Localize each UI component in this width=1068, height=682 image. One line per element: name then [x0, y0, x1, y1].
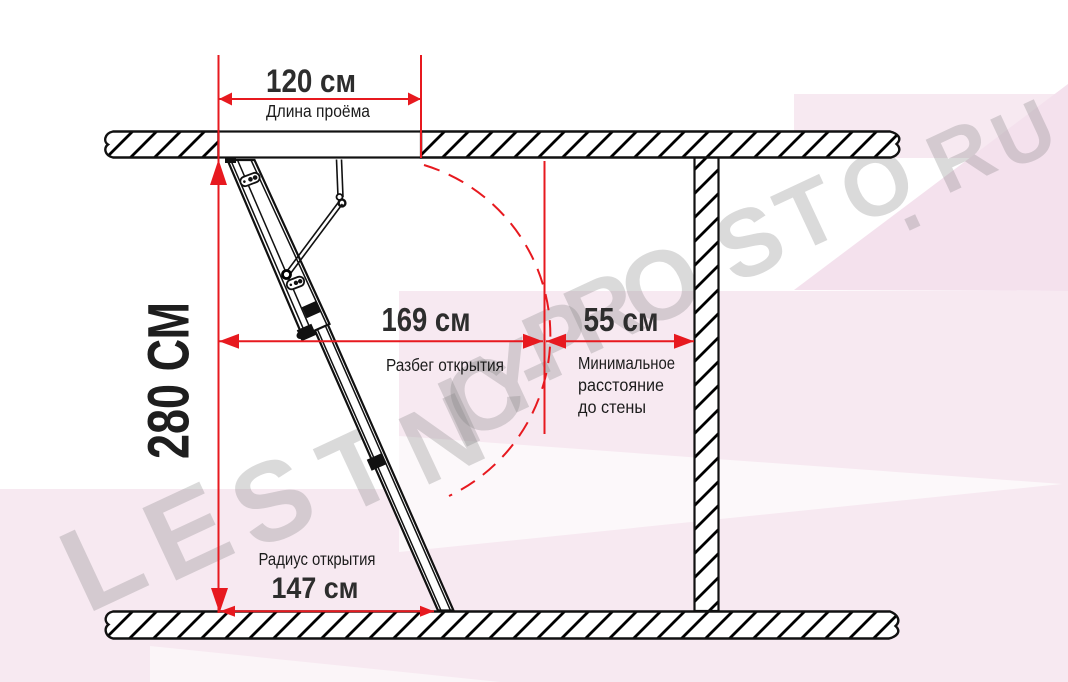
- svg-text:280 СМ: 280 СМ: [137, 302, 202, 459]
- svg-text:Минимальное: Минимальное: [578, 353, 675, 373]
- svg-text:до стены: до стены: [578, 397, 646, 417]
- svg-text:147 см: 147 см: [272, 572, 359, 605]
- svg-text:расстояние: расстояние: [578, 375, 664, 395]
- svg-text:120 см: 120 см: [266, 63, 356, 99]
- svg-text:169 см: 169 см: [382, 301, 471, 338]
- svg-text:Разбег открытия: Разбег открытия: [386, 355, 504, 375]
- svg-text:Длина проёма: Длина проёма: [266, 101, 370, 121]
- svg-text:Радиус открытия: Радиус открытия: [259, 549, 376, 569]
- svg-text:55 см: 55 см: [584, 301, 659, 338]
